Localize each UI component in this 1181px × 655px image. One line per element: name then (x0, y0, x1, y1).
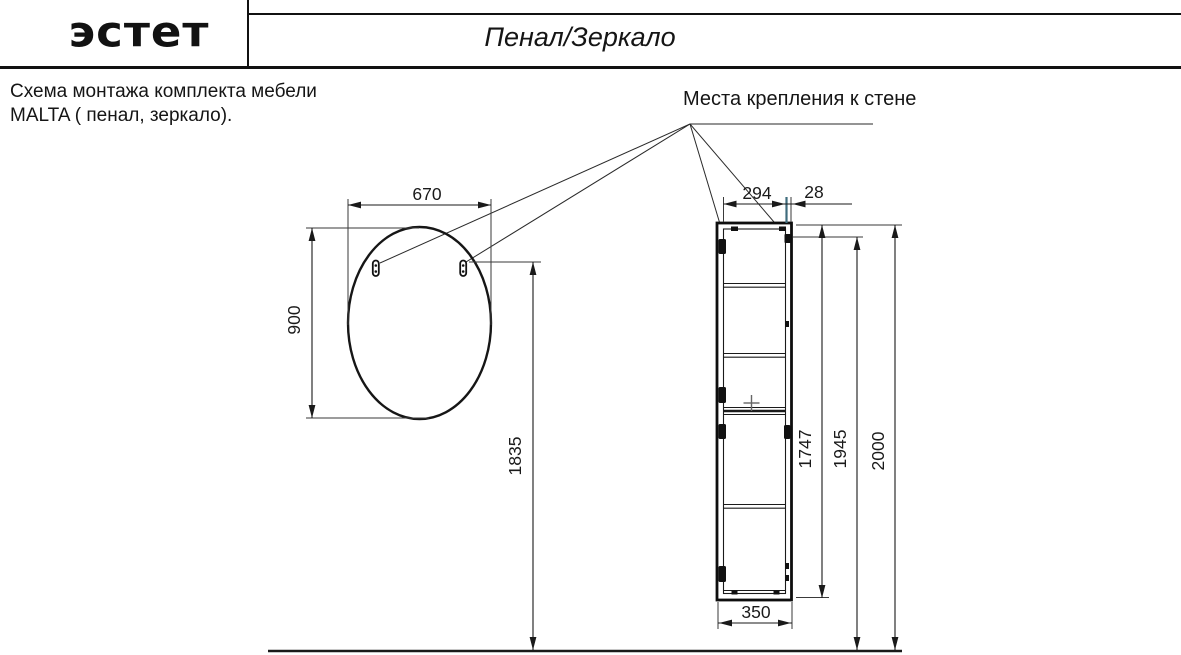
dim-mirror-height: 900 (284, 228, 315, 418)
dim-label-900: 900 (284, 305, 304, 334)
dim-label-28: 28 (804, 182, 823, 202)
dim-mirror-width: 670 (348, 184, 491, 208)
cabinet-foot-right (774, 591, 780, 595)
mirror-mount-bracket-right (460, 261, 466, 277)
dim-cabinet-width: 350 (718, 602, 792, 626)
dim-label-1835: 1835 (505, 437, 525, 476)
dim-label-350: 350 (741, 602, 770, 622)
cabinet-foot-left (732, 591, 738, 595)
drawing-sheet: эстет Пенал/Зеркало Схема монтажа компле… (0, 0, 1181, 655)
dim-label-670: 670 (412, 184, 441, 204)
dim-cabinet-mounts: 294 28 (724, 182, 853, 207)
dim-label-1945: 1945 (830, 430, 850, 469)
cabinet-drawing (717, 197, 792, 600)
dim-label-294: 294 (742, 183, 771, 203)
dim-cabinet-total-height: 2000 (868, 225, 898, 650)
dim-label-1747: 1747 (795, 430, 815, 469)
leader-lines (380, 124, 873, 263)
technical-drawing: 670 900 1835 294 28 (0, 0, 1181, 655)
dim-label-2000: 2000 (868, 431, 888, 470)
dim-cabinet-height: 1747 (795, 225, 825, 598)
mirror-mount-bracket-left (373, 261, 379, 277)
dim-mirror-mount-height: 1835 (505, 262, 536, 650)
dim-cabinet-mount-height: 1945 (830, 237, 860, 650)
mirror-drawing (348, 227, 491, 419)
